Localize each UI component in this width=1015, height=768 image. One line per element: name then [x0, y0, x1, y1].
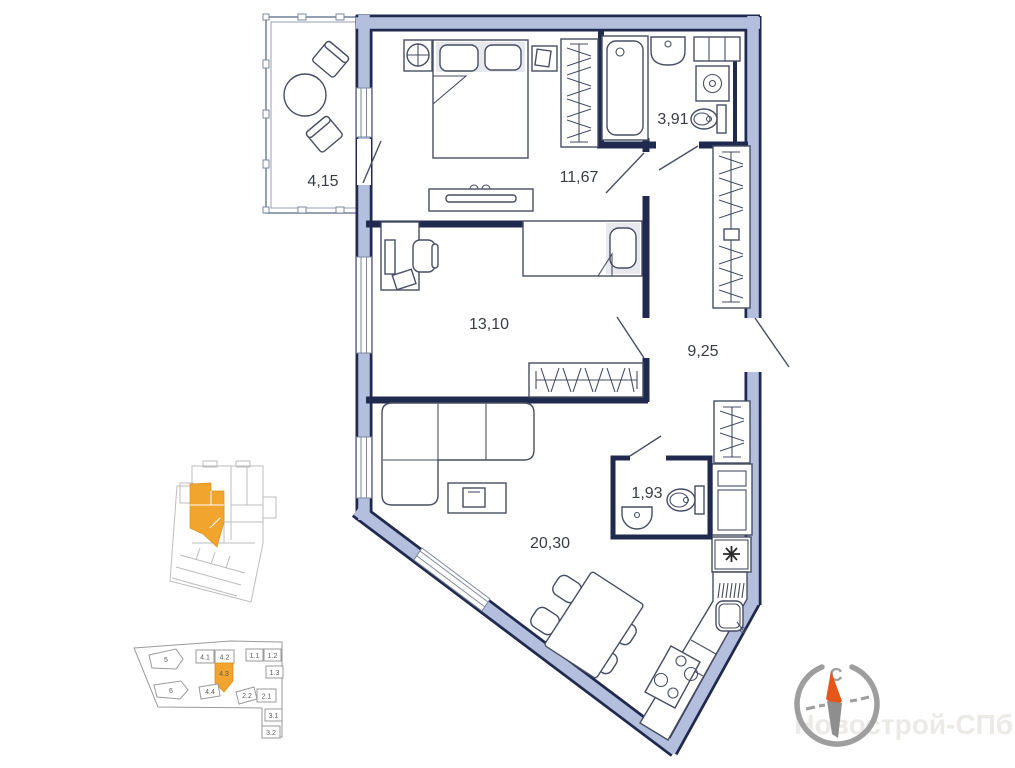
- dresser-tv: [429, 185, 533, 211]
- bedroom-door-leaf: [606, 153, 644, 193]
- kitchen-sink: [716, 601, 746, 633]
- svg-text:3.1: 3.1: [269, 713, 279, 720]
- area-label-room2: 13,10: [469, 316, 509, 333]
- svg-text:1.2: 1.2: [268, 653, 278, 660]
- unit-3-2: 3.2: [262, 726, 280, 738]
- svg-text:4.1: 4.1: [200, 655, 210, 662]
- dining-set: [528, 571, 644, 679]
- building-inset: [170, 461, 276, 602]
- floor-plan-page: 4,15 11,67 3,91 13,10 9,25 1,93 20,30 5 …: [0, 0, 1015, 768]
- svg-text:2.2: 2.2: [242, 693, 252, 700]
- room2-wardrobe: [529, 363, 643, 397]
- unit-2-1: 2.1: [257, 689, 276, 702]
- unit-4-1: 4.1: [196, 650, 214, 663]
- area-label-wc: 1,93: [631, 485, 662, 502]
- double-bed: [433, 40, 528, 158]
- living-window: [357, 437, 372, 498]
- desk-chair: [413, 240, 438, 272]
- highlighted-unit-shape: [190, 483, 224, 547]
- area-label-balcony: 4,15: [307, 173, 338, 190]
- entrance-door-leaf: [755, 318, 789, 367]
- unit-1-1: 1.1: [246, 649, 263, 661]
- svg-text:4.2: 4.2: [220, 655, 230, 662]
- coat-rack: [714, 401, 750, 463]
- bathtub: [602, 36, 648, 140]
- area-label-living: 20,30: [530, 535, 570, 552]
- bath-toilet: [691, 105, 726, 133]
- svg-text:2.1: 2.1: [262, 694, 272, 701]
- watermark-text: Новострой-СПб: [794, 709, 1013, 740]
- bedroom-wardrobe: [561, 39, 598, 147]
- svg-text:5: 5: [164, 657, 168, 664]
- fridge: [712, 464, 752, 535]
- svg-text:4.3: 4.3: [219, 671, 229, 678]
- svg-text:4.4: 4.4: [205, 689, 215, 696]
- unit-1-3: 1.3: [266, 666, 283, 678]
- bedroom-window: [357, 88, 372, 137]
- svg-text:1.3: 1.3: [270, 670, 280, 677]
- area-label-hallway: 9,25: [687, 343, 718, 360]
- nightstand: [532, 46, 557, 71]
- single-bed: [523, 221, 642, 276]
- hall-wardrobe: [713, 146, 750, 308]
- balcony-table: [284, 74, 326, 116]
- unit-3-1: 3.1: [265, 709, 282, 721]
- room2-furniture: [381, 221, 643, 397]
- boiler-box: [712, 537, 751, 572]
- coffee-table: [448, 483, 506, 513]
- area-label-bathroom: 3,91: [657, 111, 688, 128]
- svg-text:6: 6: [169, 688, 173, 695]
- svg-text:3.2: 3.2: [266, 730, 276, 737]
- bath-sink: [651, 37, 685, 65]
- balcony-door-gap: [357, 139, 371, 185]
- washing-machine: [696, 66, 729, 101]
- bathroom-door-leaf: [659, 146, 698, 170]
- nightstand-lamp: [404, 40, 432, 71]
- living-angled-window: [414, 548, 490, 611]
- unit-4-4: 4.4: [199, 684, 220, 699]
- bath-cabinet: [694, 37, 740, 61]
- hallway-wardrobes: [713, 146, 750, 463]
- unit-1-2: 1.2: [264, 649, 281, 661]
- floor-plan-canvas: 4,15 11,67 3,91 13,10 9,25 1,93 20,30 5 …: [0, 0, 1015, 768]
- floor-schematic: 5 6 4.1 4.2 4.3 4.4 1.1 1.2 1.3 2.2 2.1 …: [134, 641, 283, 738]
- svg-text:1.1: 1.1: [250, 653, 260, 660]
- room2-door-leaf: [617, 317, 644, 358]
- compass: С: [797, 665, 877, 744]
- room2-window: [357, 257, 372, 353]
- area-label-bedroom: 11,67: [560, 169, 599, 186]
- wc-door-leaf: [630, 436, 661, 456]
- unit-4-2: 4.2: [215, 650, 234, 663]
